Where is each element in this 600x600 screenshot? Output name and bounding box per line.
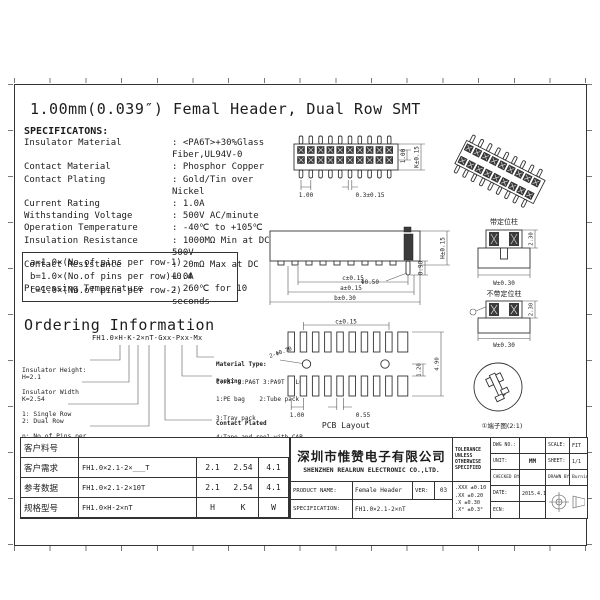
formula-b: b=1.0×(No.of pins per row)+0.4 [30,270,230,284]
product-name-label: PRODUCT NAME: [291,482,353,500]
sheet-value: 1/1 [570,454,587,470]
isometric-view-drawing [448,124,553,224]
checked-by-value [520,470,546,486]
side-view-without-post: 不带定位柱 2.30 W±0.30 [468,288,548,350]
pcb-caption: PCB Layout [322,421,370,430]
left-ruler [8,84,13,545]
product-name-value: Female Header [353,482,413,500]
side2-title: 不带定位柱 [487,289,522,298]
dim-pcb-pitch: 1.00 [290,412,305,419]
formula-c: c=1.0×(No.of pins per row-2) [30,284,230,298]
bottom-pins [299,170,391,178]
dim-pin-width: 0.3±0.15 [356,192,385,199]
front-contact [404,234,413,260]
specifications-heading: SPECIFICATONS: [24,126,274,137]
tolerance-title: TOLERANCE UNLESS OTHERWISE SPECIFIED [453,438,491,482]
checked-by-label: CHECKED BY: [491,470,520,486]
front-view-drawing: Φ0.50 0.90 H±0.15 c±0.15 a±0.15 b±0.30 [258,226,468,314]
ecn-label: ECN: [491,502,520,518]
ordering-code: FH1.0×H-K-2×nT-Gxx-Pxx-Mx [92,334,202,342]
dim-side1-w: W±0.30 [493,280,515,287]
side1-title: 带定位柱 [490,217,518,226]
detail-caption: ①端子图(2:1) [458,420,546,430]
company-name-cn: 深圳市惟赞电子有限公司 [297,446,446,465]
bottom-ruler [14,546,586,551]
side-view-with-post: 带定位柱 2.30 W±0.30 [468,216,548,290]
pcb-hole-right [381,360,389,368]
dim-pcb-c: c±0.15 [335,319,357,326]
dim-b: b±0.30 [334,295,356,302]
dim-side2-h: 2.30 [529,303,535,316]
detail-callout [470,309,476,315]
dim-pcb-holes: 2-Φ0.70 [269,346,293,360]
spec-row: Withstanding Voltage: 500V AC/minute [24,210,274,222]
dwg-no-value [520,438,546,454]
dim-side2-w: W±0.30 [493,342,515,349]
dim-c: c±0.15 [342,275,364,282]
date-value: 2015.4.12 [520,486,546,502]
spec-row: Contact Material: Phosphor Copper [24,161,274,173]
pcb-pads-bottom [288,376,408,396]
specification-label: SPECIFICATION: [291,500,353,518]
dim-pin-length: 0.90 [418,260,425,275]
dim-pcb-pad: 0.55 [356,412,371,419]
drawn-by-value: Burning [570,470,587,486]
pcb-layout-drawing: c±0.15 2-Φ0.70 1.20 4.90 1.00 0.55 PCB L… [268,318,463,430]
datasheet-page: 1.00mm(0.039″) Femal Header, Dual Row SM… [0,0,600,600]
title-block: 深圳市惟赞电子有限公司 SHENZHEN REALRUN ELECTRONIC … [290,437,588,519]
locating-post [501,248,508,259]
terminal-detail-drawing [460,358,544,418]
version-label: VER: [413,482,435,500]
dim-pitch: 1.00 [299,192,314,199]
front-contact-top [404,227,411,232]
scale-label: SCALE: [546,438,570,454]
row-label: 客户需求 [21,458,79,478]
company-cell: 深圳市惟赞电子有限公司 SHENZHEN REALRUN ELECTRONIC … [291,438,453,482]
dwg-no-label: DWG NO.: [491,438,520,454]
dim-body-width: K±0.15 [414,146,421,168]
iso-connector [451,133,548,210]
top-ruler [14,78,586,83]
formula-a: a=1.0×(No.of pins per row-1) [30,256,230,270]
version-value: 03 [435,482,453,500]
dim-a: a±0.15 [340,285,362,292]
projection-symbol-cell [546,486,587,518]
dim-pcb-inner: 1.20 [417,363,423,376]
specification-value: FH1.0×2.1-2×nT [353,500,453,518]
sheet-label: SHEET: [546,454,570,470]
dim-pcb-outer: 4.90 [435,357,441,370]
pcb-pads-top [288,332,408,352]
unit-value: MM [520,454,546,470]
spec-row: Contact Plating: Gold/Tin over Nickel [24,174,274,198]
row-label: 参考数据 [21,478,79,498]
ecn-value [520,502,546,518]
row-label: 规格型号 [21,498,79,518]
date-label: DATE: [491,486,520,502]
top-view-drawing: 1.00 0.3±0.15 1.00 K±0.15 [287,126,437,214]
ordering-heading: Ordering Information [24,316,215,334]
top-pins [299,136,391,144]
third-angle-projection-icon [548,488,585,516]
pcb-hole-left [302,360,310,368]
unit-label: UNIT: [491,454,520,470]
dim-row-pitch: 1.00 [400,148,407,163]
page-title: 1.00mm(0.039″) Femal Header, Dual Row SM… [30,100,421,118]
spec-row: Operation Temperature: -40℃ to +105℃ [24,222,274,234]
dim-side1-h: 2.30 [529,232,535,245]
pin-formula-box: a=1.0×(No.of pins per row-1) b=1.0×(No.o… [22,252,238,302]
front-body [270,231,420,261]
spec-row: Insulator Material: <PA6T>+30%Glass Fibe… [24,137,274,161]
company-name-en: SHENZHEN REALRUN ELECTRONIC CO.,LTD. [303,467,439,474]
spec-row: Current Rating: 1.0A [24,198,274,210]
dim-height: H±0.15 [440,237,447,259]
tolerance-lines: .XXX ±0.10 .XX ±0.20 .X ±0.30 .X° ±0.3° [453,482,491,518]
customer-part-no [79,438,289,458]
customer-table: 客户料号 客户需求 FH1.0×2.1-2×___T 2.1 2.54 4.1 … [20,437,290,519]
row-label: 客户料号 [21,438,79,458]
front-leads [278,261,396,265]
drawn-by-label: DRAWN BY: [546,470,570,486]
scale-value: FIT [570,438,587,454]
